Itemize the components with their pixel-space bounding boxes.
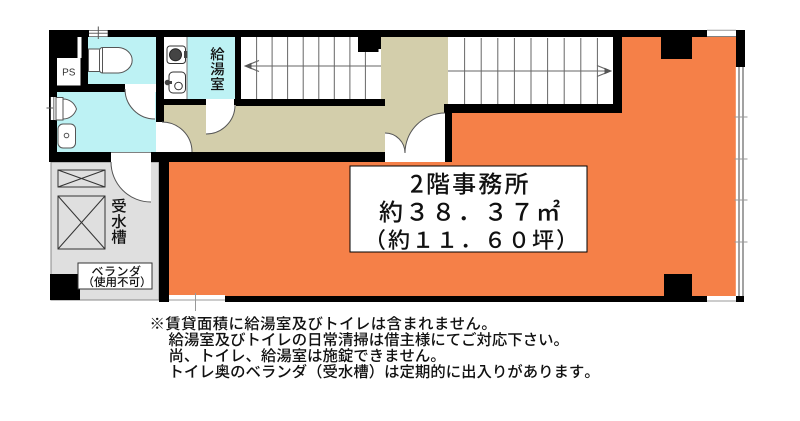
- svg-text:PS: PS: [62, 68, 76, 79]
